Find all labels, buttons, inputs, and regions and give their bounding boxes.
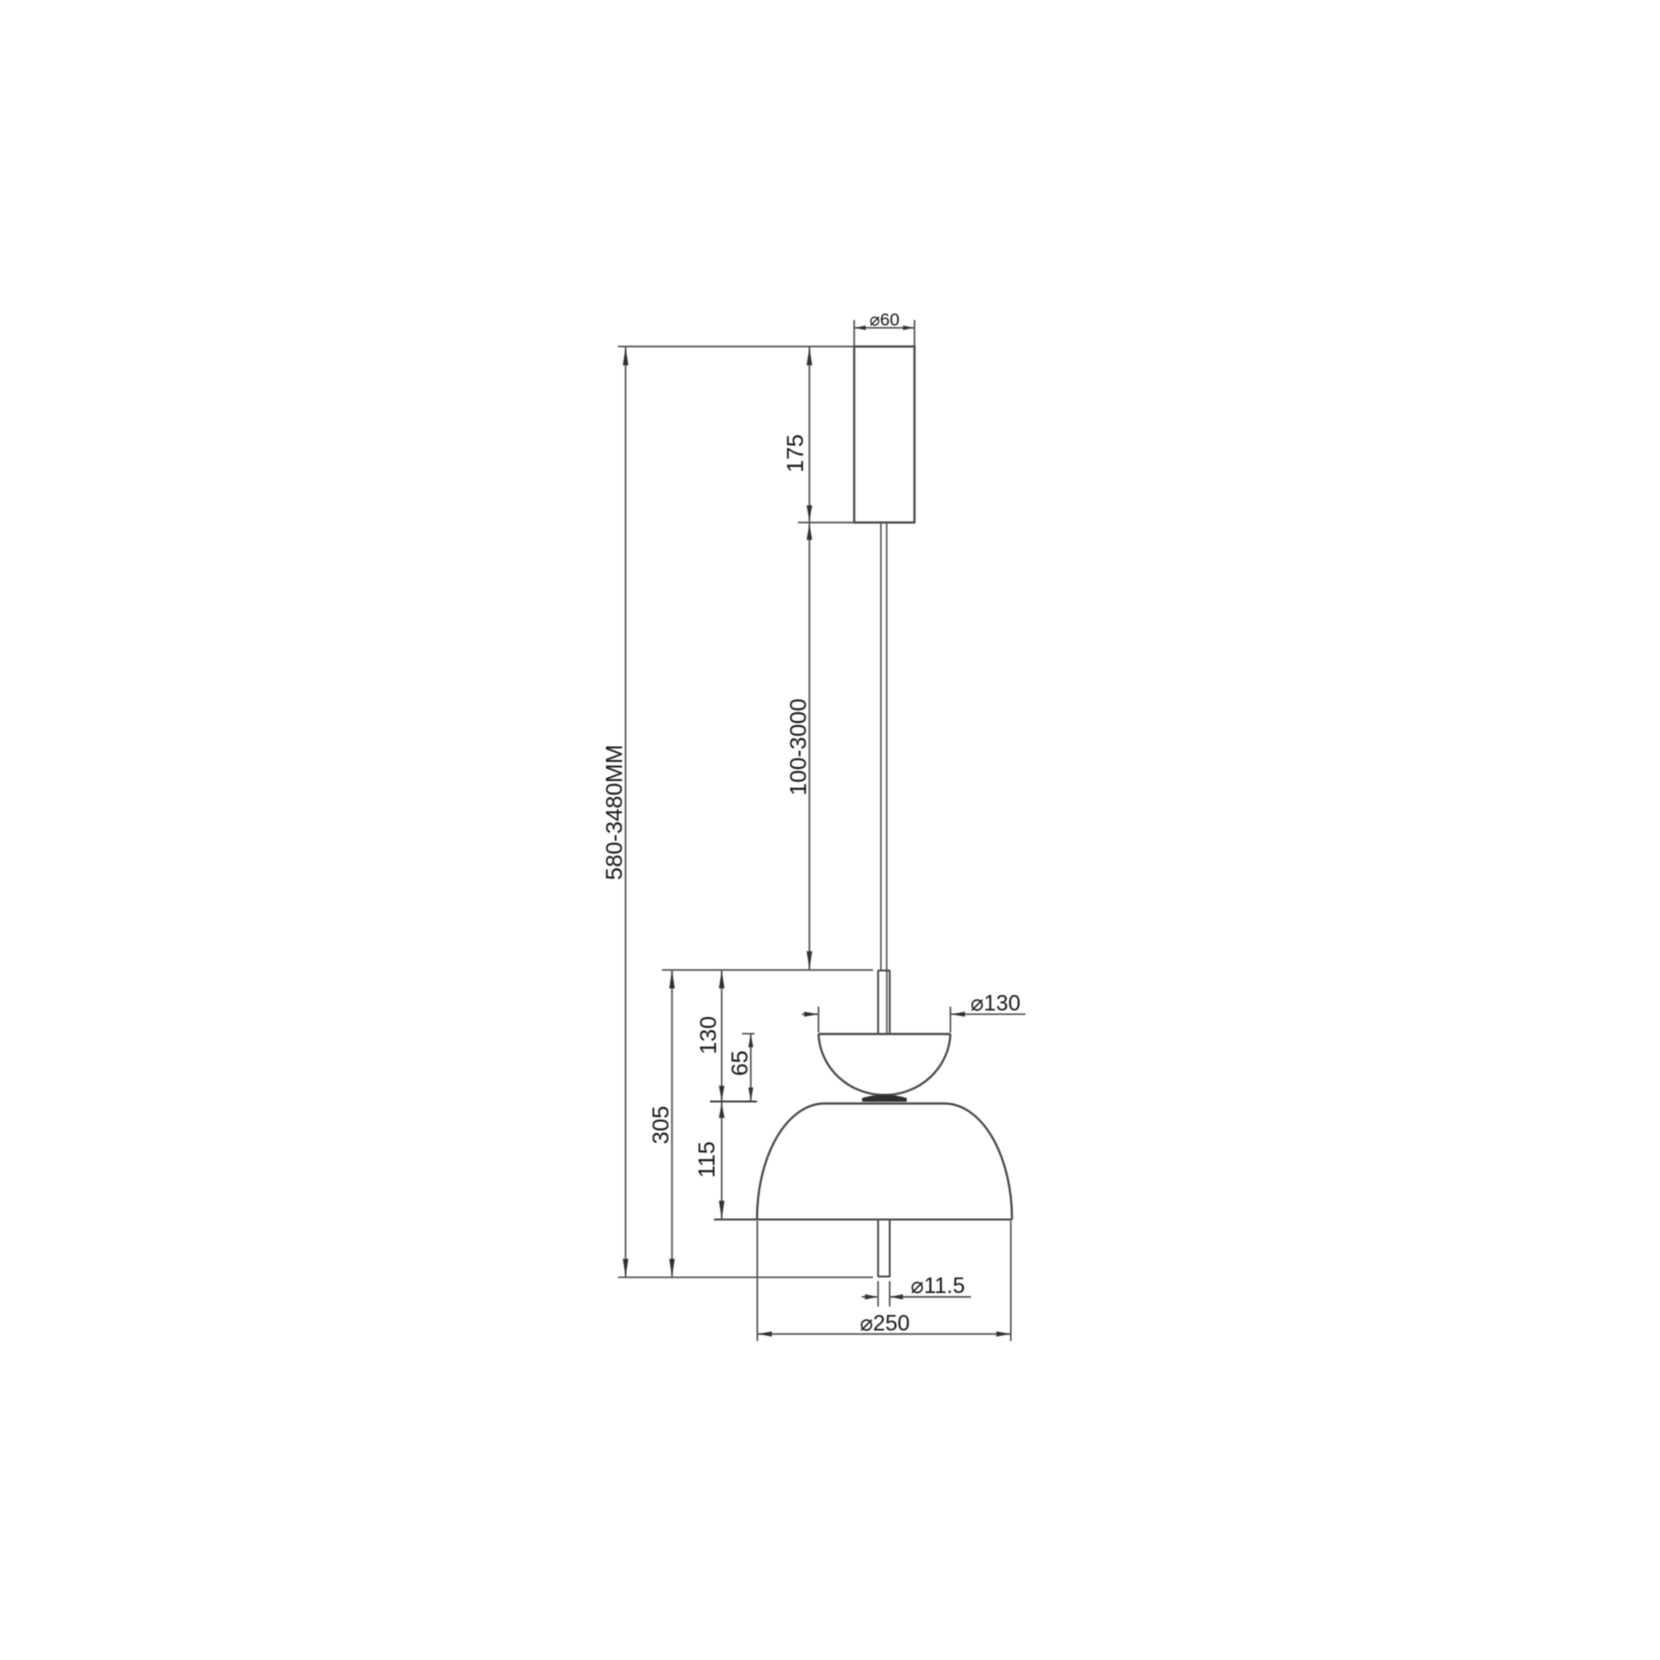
svg-text:305: 305	[647, 1106, 673, 1144]
svg-text:115: 115	[694, 1141, 720, 1178]
svg-text:⌀60: ⌀60	[869, 309, 899, 329]
svg-text:130: 130	[695, 1016, 721, 1054]
svg-text:⌀11.5: ⌀11.5	[911, 1273, 965, 1298]
svg-text:580-3480MM: 580-3480MM	[601, 745, 627, 881]
svg-text:⌀130: ⌀130	[971, 991, 1021, 1016]
svg-text:⌀250: ⌀250	[860, 1311, 910, 1336]
svg-text:100-3000: 100-3000	[785, 698, 811, 795]
svg-text:65: 65	[727, 1050, 753, 1076]
svg-text:175: 175	[782, 434, 808, 472]
